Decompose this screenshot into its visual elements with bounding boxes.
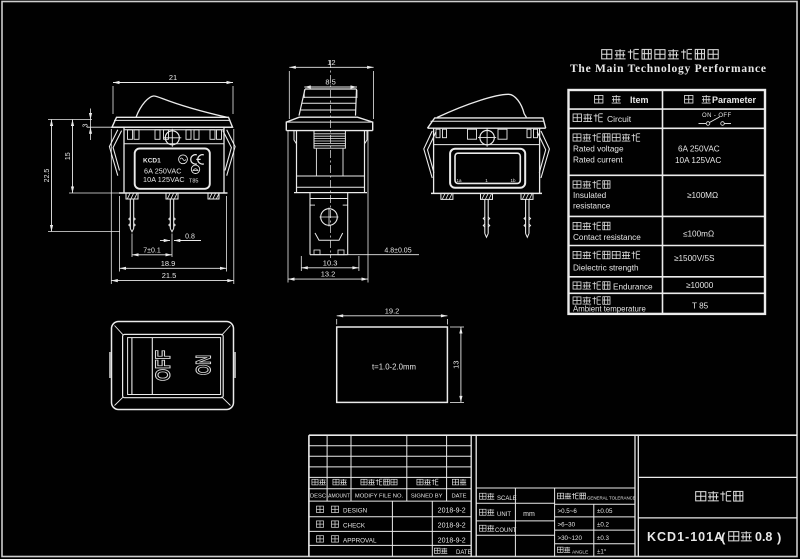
svg-text:SIGNED BY: SIGNED BY bbox=[411, 494, 443, 500]
svg-text:Rated voltage: Rated voltage bbox=[573, 145, 624, 154]
svg-text:DESIGN: DESIGN bbox=[343, 508, 368, 515]
svg-text:ANGLE: ANGLE bbox=[572, 550, 588, 556]
svg-text:DESC: DESC bbox=[310, 494, 326, 500]
svg-text:MODIFY FILE NO.: MODIFY FILE NO. bbox=[355, 494, 404, 500]
svg-text:Insulated: Insulated bbox=[573, 191, 607, 200]
svg-text:1a: 1a bbox=[456, 178, 462, 183]
svg-text:): ) bbox=[777, 530, 781, 545]
svg-text:0.8: 0.8 bbox=[755, 530, 772, 544]
svg-text:>6~30: >6~30 bbox=[558, 522, 576, 529]
svg-text:10A 125VAC: 10A 125VAC bbox=[143, 175, 185, 184]
svg-text:DATE: DATE bbox=[451, 494, 466, 500]
svg-text:Dielectric strength: Dielectric strength bbox=[573, 264, 639, 273]
svg-text:13.2: 13.2 bbox=[321, 270, 336, 279]
svg-text:±1°: ±1° bbox=[597, 549, 607, 556]
svg-text:≥100MΩ: ≥100MΩ bbox=[687, 191, 718, 200]
svg-text:DATE: DATE bbox=[456, 550, 472, 556]
svg-text:SCALE: SCALE bbox=[497, 496, 517, 502]
svg-text:GENERAL TOLERANCE: GENERAL TOLERANCE bbox=[587, 496, 636, 501]
svg-text:Endurance: Endurance bbox=[613, 283, 653, 292]
svg-text:Circuit: Circuit bbox=[607, 114, 632, 124]
svg-text:Parameter: Parameter bbox=[712, 95, 757, 105]
svg-text:Contact resistance: Contact resistance bbox=[573, 233, 641, 242]
svg-text:resistance: resistance bbox=[573, 202, 611, 211]
svg-text:7±0.1: 7±0.1 bbox=[143, 248, 161, 255]
svg-text:APPROVAL: APPROVAL bbox=[343, 537, 377, 544]
svg-text:Ambient temperature: Ambient temperature bbox=[573, 305, 646, 314]
svg-text:≥10000: ≥10000 bbox=[686, 281, 714, 290]
svg-text:OFF: OFF bbox=[152, 350, 175, 381]
svg-text:UNIT: UNIT bbox=[497, 512, 511, 518]
svg-text:≥1500V/5S: ≥1500V/5S bbox=[674, 254, 715, 263]
svg-text:≤100mΩ: ≤100mΩ bbox=[683, 230, 714, 239]
svg-text:(: ( bbox=[721, 530, 726, 545]
svg-text:19.2: 19.2 bbox=[385, 306, 400, 315]
svg-text:KCD1: KCD1 bbox=[143, 158, 161, 165]
svg-text:Rated current: Rated current bbox=[573, 156, 623, 165]
svg-text:AMOUNT: AMOUNT bbox=[328, 494, 350, 500]
svg-text:21: 21 bbox=[169, 73, 177, 82]
svg-text:1b: 1b bbox=[510, 178, 516, 183]
svg-text:ON: ON bbox=[193, 355, 216, 375]
svg-text:mm: mm bbox=[523, 511, 535, 518]
svg-text:KCD1-101A: KCD1-101A bbox=[647, 530, 724, 544]
svg-text:2018-9-2: 2018-9-2 bbox=[438, 523, 466, 530]
svg-text:±0.3: ±0.3 bbox=[597, 535, 610, 542]
svg-text:22.5: 22.5 bbox=[44, 169, 51, 183]
svg-text:10A 125VAC: 10A 125VAC bbox=[675, 156, 721, 165]
svg-text:10.3: 10.3 bbox=[323, 258, 338, 267]
svg-text:The Main Technology Performanc: The Main Technology Performance bbox=[570, 63, 767, 75]
svg-text:>0.5~6: >0.5~6 bbox=[558, 508, 578, 515]
svg-text:12: 12 bbox=[327, 58, 335, 67]
svg-text:0.8: 0.8 bbox=[185, 234, 195, 241]
svg-text:4.8±0.05: 4.8±0.05 bbox=[384, 247, 411, 254]
svg-text:3: 3 bbox=[83, 123, 90, 127]
svg-text:Item: Item bbox=[630, 95, 649, 105]
svg-text:T 85: T 85 bbox=[692, 302, 709, 311]
svg-text:CHECK: CHECK bbox=[343, 523, 366, 530]
svg-text:21.5: 21.5 bbox=[162, 271, 177, 280]
svg-text:15: 15 bbox=[65, 152, 72, 160]
svg-text:±0.2: ±0.2 bbox=[597, 522, 610, 529]
svg-text:2018-9-2: 2018-9-2 bbox=[438, 508, 466, 515]
svg-text:COUNT: COUNT bbox=[495, 528, 517, 534]
svg-text:t=1.0-2.0mm: t=1.0-2.0mm bbox=[372, 363, 416, 372]
svg-text:13: 13 bbox=[451, 361, 460, 369]
svg-text:>30~120: >30~120 bbox=[558, 535, 583, 542]
svg-text:T85: T85 bbox=[189, 179, 198, 185]
svg-text:±0.05: ±0.05 bbox=[597, 508, 613, 515]
svg-text:6A 250VAC: 6A 250VAC bbox=[678, 145, 720, 154]
svg-text:2018-9-2: 2018-9-2 bbox=[438, 537, 466, 544]
svg-text:8.5: 8.5 bbox=[325, 78, 335, 87]
svg-text:18.9: 18.9 bbox=[161, 259, 176, 268]
